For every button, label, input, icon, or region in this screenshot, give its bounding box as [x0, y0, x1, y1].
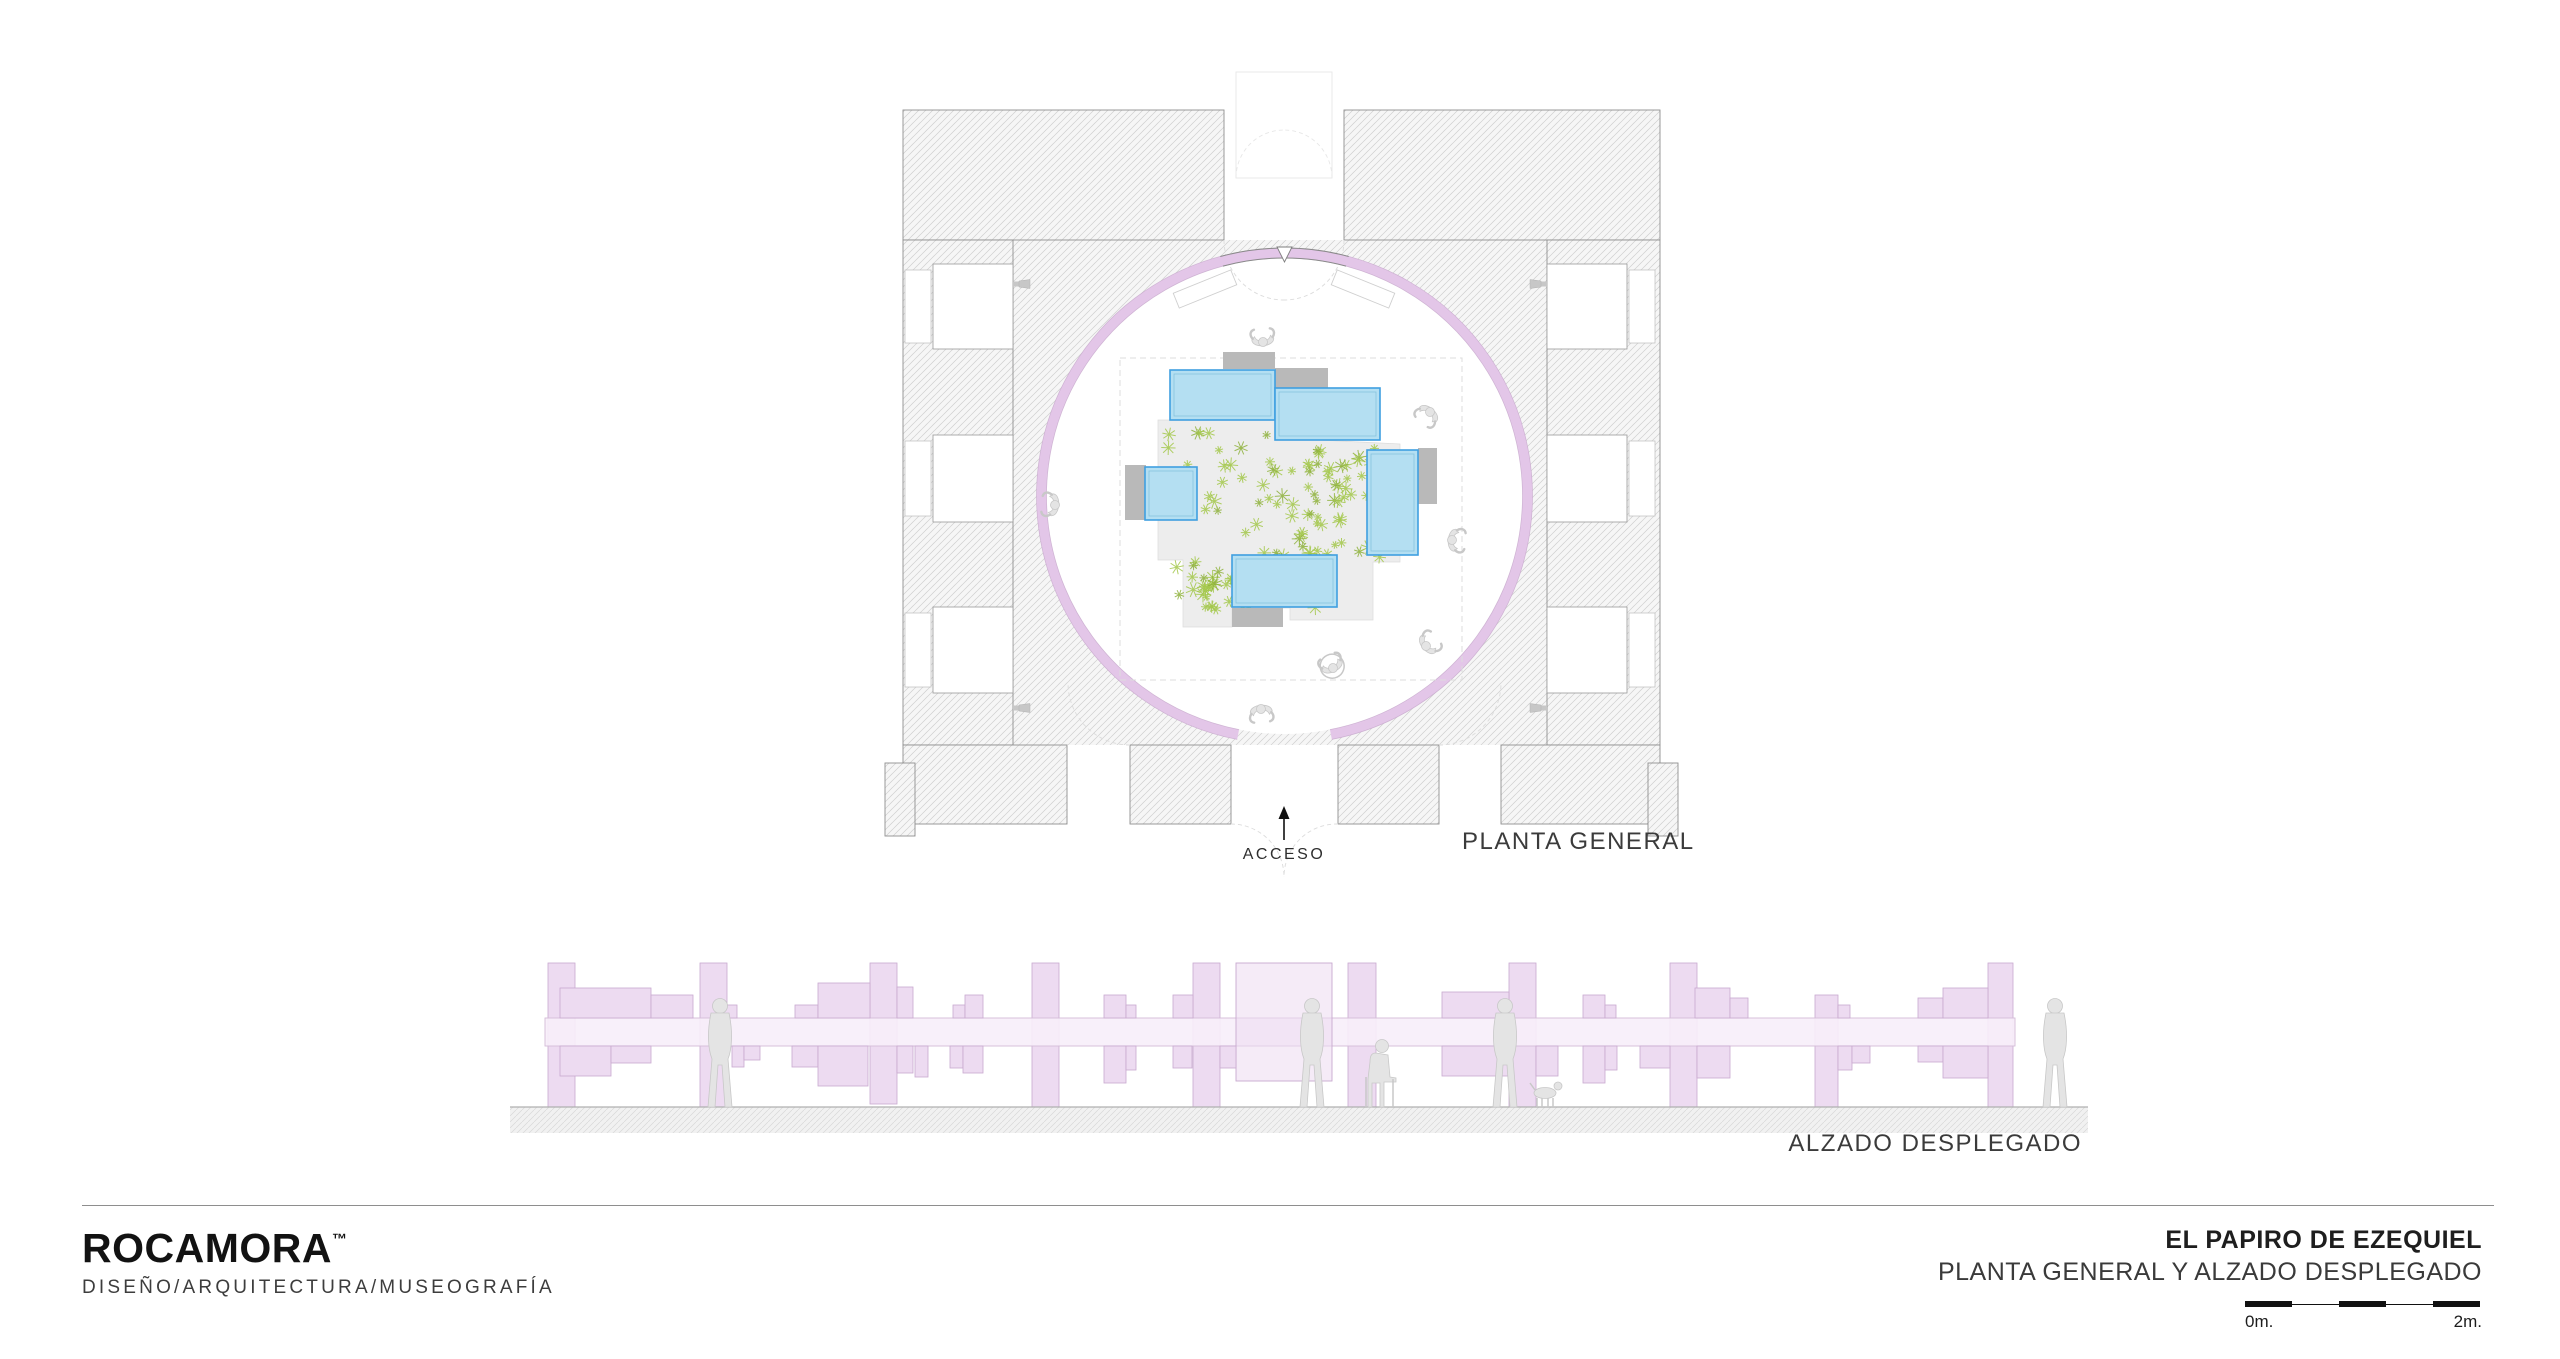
- elevation-panel-upper: [1104, 995, 1126, 1018]
- plan-drawing: [870, 60, 1690, 880]
- window-niche: [933, 435, 1013, 522]
- wall-mass: [1648, 763, 1678, 836]
- scale-segment-solid: [2339, 1301, 2386, 1307]
- alzado-desplegado-label: ALZADO DESPLEGADO: [1788, 1130, 2082, 1158]
- wall-mass: [903, 110, 1224, 240]
- elevation-panel-lower: [560, 1046, 611, 1076]
- human-figure-standing: [2043, 999, 2067, 1108]
- elevation-panel-upper: [560, 988, 651, 1018]
- display-vitrine: [1170, 370, 1275, 420]
- scale-segment-solid: [2433, 1301, 2480, 1307]
- studio-tagline: DISEÑO/ARQUITECTURA/MUSEOGRAFÍA: [82, 1277, 555, 1299]
- elevation-panel-upper: [1943, 988, 1988, 1018]
- window-frame: [905, 613, 931, 687]
- window-niche: [933, 607, 1013, 693]
- elevation-panel-upper: [1918, 998, 1943, 1018]
- sheet: ACCESO PLANTA GENERAL ALZADO DESPLEGADO …: [0, 0, 2560, 1359]
- vestibule-outline: [1236, 72, 1332, 178]
- elevation-panel-upper: [795, 1005, 818, 1018]
- elevation-panel-upper: [1730, 998, 1748, 1018]
- plinth: [1418, 448, 1437, 504]
- display-vitrine: [1232, 555, 1337, 607]
- scale-bar-segments: [2245, 1301, 2482, 1308]
- window-frame: [905, 441, 931, 516]
- trademark-symbol: ™: [332, 1231, 347, 1248]
- display-vitrine: [1275, 388, 1380, 440]
- sheet-subtitle: PLANTA GENERAL Y ALZADO DESPLEGADO: [1938, 1258, 2482, 1287]
- scale-end-label: 2m.: [2454, 1312, 2482, 1332]
- scale-bar-labels: 0m. 2m.: [2245, 1312, 2482, 1332]
- elevation-panel-lower: [1583, 1046, 1605, 1083]
- elevation-panel-upper: [1605, 1005, 1616, 1018]
- window-frame: [1629, 613, 1655, 687]
- elevation-panel-lower: [732, 1046, 744, 1067]
- display-vitrine: [1367, 450, 1418, 555]
- elevation-panel-lower: [1697, 1046, 1730, 1078]
- elevation-panel-upper: [953, 1005, 965, 1018]
- wall-mass: [1338, 745, 1439, 824]
- plinth: [1275, 368, 1328, 389]
- elevation-panel-upper: [1838, 1005, 1850, 1018]
- footer-divider: [82, 1205, 2494, 1206]
- planta-general-label: PLANTA GENERAL: [1462, 828, 1695, 856]
- elevation-panel-lower: [950, 1046, 963, 1068]
- elevation-panel-lower: [1126, 1046, 1136, 1070]
- studio-logo: ROCAMORA™: [82, 1228, 555, 1269]
- elevation-panel-lower: [1536, 1046, 1558, 1076]
- elevation-panel-upper: [965, 995, 983, 1018]
- window-niche: [1547, 264, 1627, 349]
- elevation-panel-lower: [1173, 1046, 1192, 1068]
- studio-name: ROCAMORA: [82, 1225, 332, 1271]
- elevation-panel-lower: [792, 1046, 818, 1067]
- scale-bar: 0m. 2m.: [2245, 1301, 2482, 1332]
- elevation-panel-lower: [963, 1046, 983, 1073]
- elevation-panel-lower: [818, 1046, 868, 1086]
- elevation-panel-upper: [1695, 988, 1730, 1018]
- project-title: EL PAPIRO DE EZEQUIEL: [1938, 1226, 2482, 1255]
- human-figure-walking: [1300, 999, 1324, 1108]
- window-niche: [933, 264, 1013, 349]
- window-niche: [1547, 607, 1627, 693]
- elevation-panel-lower: [611, 1046, 651, 1063]
- title-block: EL PAPIRO DE EZEQUIEL PLANTA GENERAL Y A…: [1938, 1226, 2482, 1332]
- scale-segment-solid: [2245, 1301, 2292, 1307]
- elevation-panel-lower: [1640, 1046, 1670, 1068]
- elevation-panel-lower: [1918, 1046, 1943, 1062]
- wall-mass: [1501, 745, 1660, 824]
- elevation-panel-upper: [1126, 1005, 1136, 1018]
- display-vitrine: [1145, 467, 1197, 520]
- elevation-drawing: [500, 940, 2100, 1155]
- elevation-panel-lower: [744, 1046, 760, 1060]
- elevation-panel-lower: [1852, 1046, 1870, 1063]
- acceso-label: ACCESO: [1243, 846, 1326, 864]
- elevation-panel-lower: [1943, 1046, 1988, 1078]
- elevation-panel-upper: [897, 987, 913, 1018]
- wall-mass: [885, 763, 915, 836]
- scale-start-label: 0m.: [2245, 1312, 2273, 1332]
- window-niche: [1547, 435, 1627, 522]
- elevation-panel-lower: [915, 1046, 928, 1077]
- access-arrow-head: [1279, 806, 1290, 819]
- elevation-panel-lower: [897, 1046, 913, 1073]
- studio-block: ROCAMORA™ DISEÑO/ARQUITECTURA/MUSEOGRAFÍ…: [82, 1228, 555, 1299]
- elevation-panel-lower: [1104, 1046, 1126, 1083]
- plinth: [1223, 352, 1275, 369]
- plinth: [1125, 465, 1146, 520]
- scale-segment-line: [2292, 1304, 2339, 1305]
- elevation-panel-upper: [1173, 995, 1193, 1018]
- window-frame: [1629, 270, 1655, 343]
- elevation-panel-upper: [818, 983, 870, 1018]
- door-swing-arc: [1236, 130, 1332, 178]
- elevation-panel-lower: [1838, 1046, 1852, 1070]
- window-frame: [905, 270, 931, 343]
- wall-mass: [903, 745, 1067, 824]
- elevation-column: [1815, 995, 1838, 1107]
- elevation-panel-upper: [1583, 995, 1605, 1018]
- wall-mass: [1344, 110, 1660, 240]
- elevation-panel-upper: [651, 995, 693, 1018]
- human-figure-walking: [1493, 999, 1517, 1108]
- elevation-panel-lower: [1220, 1046, 1236, 1068]
- elevation-panel-lower: [1605, 1046, 1617, 1070]
- scale-segment-line: [2386, 1304, 2433, 1305]
- window-frame: [1629, 441, 1655, 516]
- plinth: [1232, 608, 1283, 627]
- wall-mass: [1130, 745, 1231, 824]
